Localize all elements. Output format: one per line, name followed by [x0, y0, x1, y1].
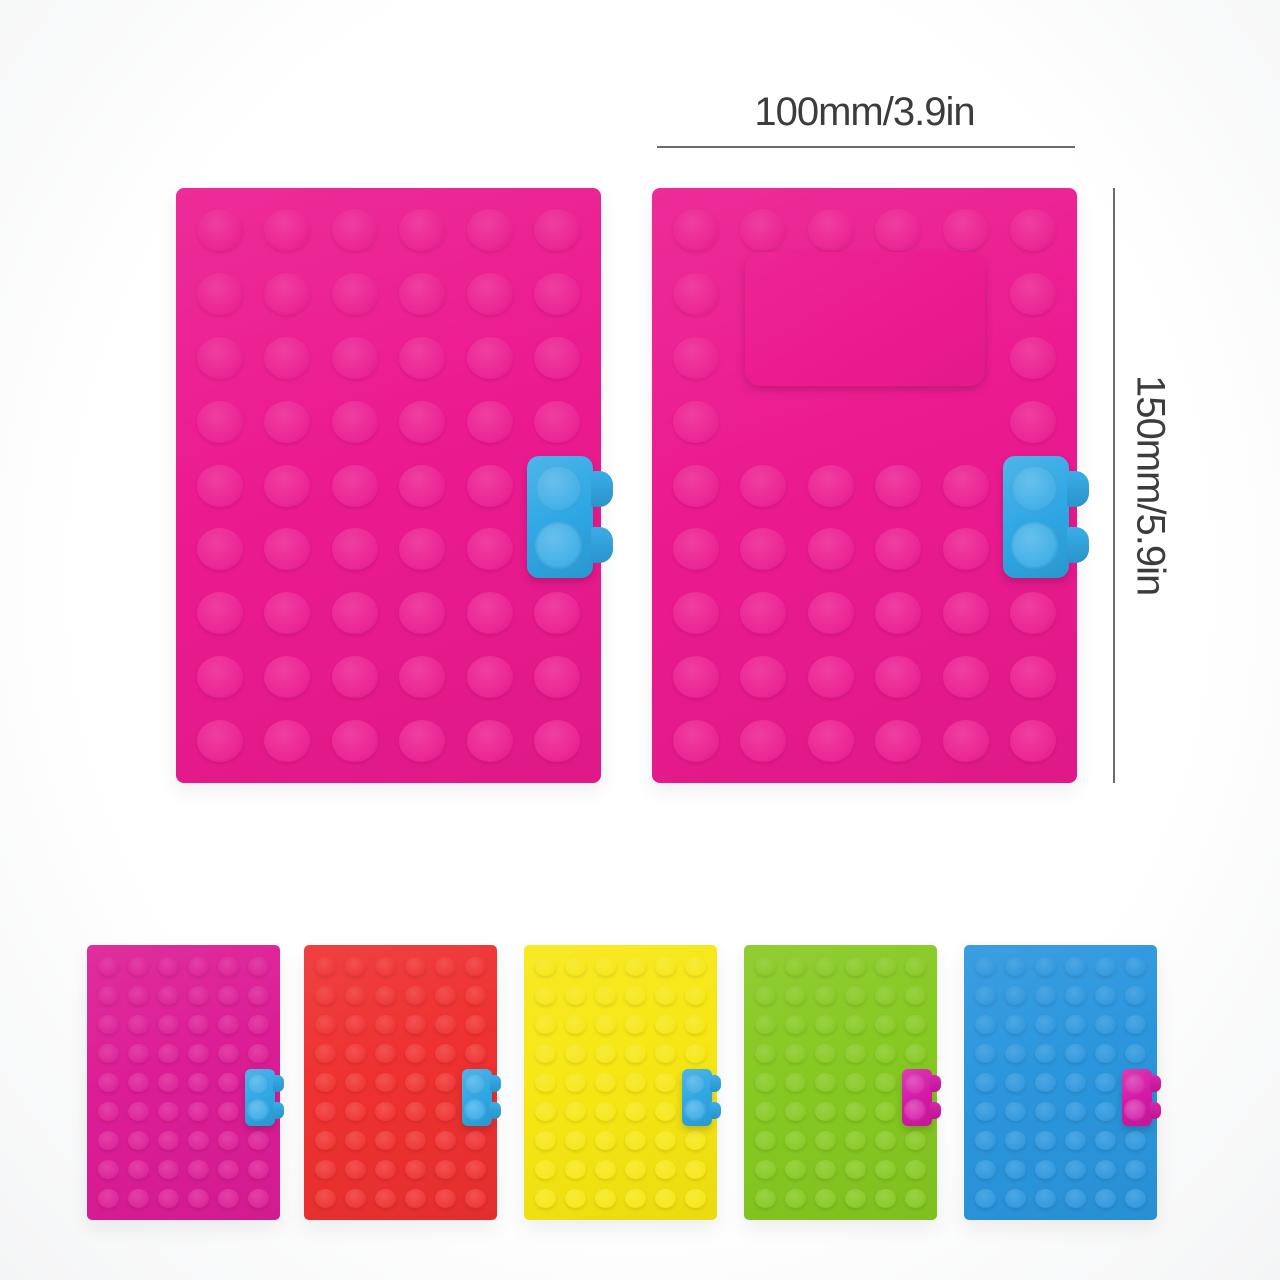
- stud: [405, 1131, 426, 1150]
- stud: [673, 592, 719, 634]
- stud: [467, 528, 513, 570]
- stud: [98, 1044, 119, 1063]
- stud: [673, 720, 719, 762]
- stud: [218, 1131, 239, 1150]
- stud: [673, 528, 719, 570]
- stud: [399, 209, 445, 251]
- stud: [875, 720, 921, 762]
- stud: [595, 1189, 616, 1208]
- stud: [128, 986, 149, 1005]
- stud: [673, 273, 719, 315]
- stud: [534, 273, 580, 315]
- stud: [1125, 1189, 1146, 1208]
- stud: [565, 1073, 586, 1092]
- clasp-stud: [904, 1099, 926, 1121]
- stud: [435, 1044, 456, 1063]
- stud: [465, 1189, 486, 1208]
- stud: [565, 1044, 586, 1063]
- stud: [875, 528, 921, 570]
- stud: [405, 1015, 426, 1034]
- stud: [332, 592, 378, 634]
- stud: [595, 1160, 616, 1179]
- stud: [565, 1102, 586, 1121]
- stud: [875, 1044, 896, 1063]
- stud: [1005, 957, 1026, 976]
- stud: [595, 986, 616, 1005]
- stud: [345, 1073, 366, 1092]
- stud: [975, 1044, 996, 1063]
- stud: [435, 1102, 456, 1121]
- stud: [1035, 957, 1056, 976]
- clasp-peg: [490, 1102, 501, 1119]
- stud: [845, 1160, 866, 1179]
- clasp-peg: [930, 1102, 941, 1119]
- stud: [943, 209, 989, 251]
- stud: [375, 1073, 396, 1092]
- clasp-stud: [464, 1073, 486, 1095]
- stud: [785, 1102, 806, 1121]
- stud: [375, 1189, 396, 1208]
- stud: [875, 1189, 896, 1208]
- stud: [128, 1015, 149, 1034]
- stud: [1005, 1044, 1026, 1063]
- stud: [655, 1015, 676, 1034]
- stud: [845, 957, 866, 976]
- stud: [740, 656, 786, 698]
- stud: [218, 1015, 239, 1034]
- stud: [975, 986, 996, 1005]
- stud: [625, 1131, 646, 1150]
- stud: [875, 957, 896, 976]
- stud: [815, 957, 836, 976]
- stud: [535, 1015, 556, 1034]
- stud: [345, 1160, 366, 1179]
- stud: [98, 957, 119, 976]
- stud: [535, 1044, 556, 1063]
- stud: [534, 656, 580, 698]
- stud: [158, 986, 179, 1005]
- stud: [465, 957, 486, 976]
- stud: [625, 986, 646, 1005]
- stud: [465, 1131, 486, 1150]
- stud: [405, 1073, 426, 1092]
- stud: [375, 1102, 396, 1121]
- clasp-peg: [1067, 471, 1089, 507]
- stud: [905, 986, 926, 1005]
- stud: [785, 986, 806, 1005]
- stud: [534, 209, 580, 251]
- stud: [345, 957, 366, 976]
- stud: [248, 986, 269, 1005]
- stud: [1035, 1189, 1056, 1208]
- stud: [975, 1073, 996, 1092]
- stud: [943, 465, 989, 507]
- stud: [625, 1189, 646, 1208]
- product-photo: 100mm/3.9in 150mm/5.9in: [0, 0, 1280, 1280]
- stud: [435, 1073, 456, 1092]
- stud: [655, 1073, 676, 1092]
- stud: [405, 986, 426, 1005]
- stud: [673, 465, 719, 507]
- stud: [375, 1131, 396, 1150]
- stud: [595, 957, 616, 976]
- cover-frame-panel: [745, 252, 985, 386]
- stud: [218, 1160, 239, 1179]
- stud: [465, 1044, 486, 1063]
- stud: [534, 720, 580, 762]
- stud: [248, 1189, 269, 1208]
- stud: [375, 1015, 396, 1034]
- stud: [158, 957, 179, 976]
- stud: [655, 1044, 676, 1063]
- stud: [685, 1015, 706, 1034]
- stud: [595, 1073, 616, 1092]
- stud: [685, 957, 706, 976]
- clasp-brick: [682, 1069, 712, 1126]
- clasp-stud: [247, 1099, 269, 1121]
- stud: [845, 1073, 866, 1092]
- stud: [399, 273, 445, 315]
- stud: [332, 337, 378, 379]
- stud: [188, 1131, 209, 1150]
- stud: [467, 656, 513, 698]
- stud: [1125, 1131, 1146, 1150]
- stud: [740, 528, 786, 570]
- stud: [158, 1189, 179, 1208]
- clasp-brick: [245, 1069, 275, 1126]
- stud: [375, 957, 396, 976]
- clasp-stud: [247, 1073, 269, 1095]
- stud: [315, 1073, 336, 1092]
- stud: [1065, 957, 1086, 976]
- stud: [332, 528, 378, 570]
- stud: [808, 209, 854, 251]
- red-variant-plate: [304, 945, 497, 1220]
- stud: [1010, 592, 1056, 634]
- stud: [535, 986, 556, 1005]
- stud: [435, 957, 456, 976]
- stud: [565, 1015, 586, 1034]
- stud: [673, 656, 719, 698]
- stud: [975, 1015, 996, 1034]
- stud: [815, 1189, 836, 1208]
- stud: [375, 1160, 396, 1179]
- stud: [218, 986, 239, 1005]
- stud: [345, 1102, 366, 1121]
- stud: [1095, 1102, 1116, 1121]
- stud: [264, 656, 310, 698]
- stud: [248, 957, 269, 976]
- stud: [188, 1015, 209, 1034]
- stud: [1005, 1073, 1026, 1092]
- stud: [264, 401, 310, 443]
- stud: [625, 1102, 646, 1121]
- clasp-stud: [1124, 1099, 1146, 1121]
- stud: [435, 986, 456, 1005]
- stud: [315, 1044, 336, 1063]
- stud: [845, 1044, 866, 1063]
- stud: [685, 1131, 706, 1150]
- stud: [197, 273, 243, 315]
- stud: [1010, 656, 1056, 698]
- stud: [98, 1160, 119, 1179]
- stud: [188, 1102, 209, 1121]
- stud: [158, 1102, 179, 1121]
- stud: [467, 273, 513, 315]
- stud: [595, 1044, 616, 1063]
- stud: [905, 1015, 926, 1034]
- stud: [655, 1189, 676, 1208]
- stud: [188, 957, 209, 976]
- stud: [345, 1044, 366, 1063]
- stud: [655, 957, 676, 976]
- stud: [785, 1015, 806, 1034]
- stud: [158, 1160, 179, 1179]
- clasp-stud: [1124, 1073, 1146, 1095]
- front-cover-plate: [652, 188, 1077, 783]
- stud: [845, 1015, 866, 1034]
- stud: [740, 465, 786, 507]
- clasp-stud: [464, 1099, 486, 1121]
- stud: [1010, 720, 1056, 762]
- stud: [98, 1102, 119, 1121]
- stud: [264, 720, 310, 762]
- stud: [1035, 986, 1056, 1005]
- stud: [188, 1160, 209, 1179]
- stud: [808, 592, 854, 634]
- stud: [345, 1189, 366, 1208]
- stud: [673, 209, 719, 251]
- stud: [655, 1102, 676, 1121]
- stud: [218, 1044, 239, 1063]
- stud: [785, 1073, 806, 1092]
- stud: [755, 1131, 776, 1150]
- stud: [467, 209, 513, 251]
- stud: [1065, 1015, 1086, 1034]
- stud: [943, 592, 989, 634]
- clasp-peg: [930, 1075, 941, 1092]
- stud: [1010, 209, 1056, 251]
- clasp-peg: [710, 1102, 721, 1119]
- stud: [1065, 1131, 1086, 1150]
- stud: [1095, 986, 1116, 1005]
- stud: [399, 592, 445, 634]
- stud: [332, 465, 378, 507]
- stud: [875, 1160, 896, 1179]
- stud: [1005, 1131, 1026, 1150]
- stud: [98, 1073, 119, 1092]
- stud: [875, 656, 921, 698]
- stud: [128, 1102, 149, 1121]
- stud: [315, 1102, 336, 1121]
- stud: [1035, 1102, 1056, 1121]
- stud: [740, 720, 786, 762]
- stud: [399, 720, 445, 762]
- clasp-peg: [1150, 1075, 1161, 1092]
- stud: [685, 1044, 706, 1063]
- stud: [905, 957, 926, 976]
- clasp-peg: [273, 1075, 284, 1092]
- clasp-peg: [591, 527, 613, 563]
- stud: [188, 1073, 209, 1092]
- stud: [785, 1160, 806, 1179]
- stud: [1125, 1015, 1146, 1034]
- stud: [264, 528, 310, 570]
- stud: [435, 1131, 456, 1150]
- clasp-peg: [591, 471, 613, 507]
- stud: [1125, 1160, 1146, 1179]
- stud: [197, 592, 243, 634]
- clasp-peg: [490, 1075, 501, 1092]
- clasp-peg: [1067, 527, 1089, 563]
- stud: [815, 1015, 836, 1034]
- stud: [315, 957, 336, 976]
- stud: [1095, 1044, 1116, 1063]
- stud: [128, 957, 149, 976]
- clasp-stud: [684, 1099, 706, 1121]
- plates-layer: [0, 0, 1280, 1280]
- stud: [264, 465, 310, 507]
- stud: [197, 337, 243, 379]
- stud: [158, 1015, 179, 1034]
- clasp-peg: [710, 1075, 721, 1092]
- stud: [264, 273, 310, 315]
- stud: [755, 1044, 776, 1063]
- stud: [875, 1073, 896, 1092]
- stud: [1005, 1160, 1026, 1179]
- clasp-peg: [273, 1102, 284, 1119]
- stud: [332, 209, 378, 251]
- yellow-variant-plate: [524, 945, 717, 1220]
- stud: [332, 656, 378, 698]
- stud: [905, 1189, 926, 1208]
- stud: [535, 1102, 556, 1121]
- stud: [975, 1102, 996, 1121]
- stud: [905, 1160, 926, 1179]
- stud: [565, 986, 586, 1005]
- stud: [685, 1189, 706, 1208]
- stud: [905, 1044, 926, 1063]
- pink-variant-plate: [87, 945, 280, 1220]
- stud: [197, 465, 243, 507]
- stud: [534, 337, 580, 379]
- stud: [264, 592, 310, 634]
- stud: [943, 720, 989, 762]
- stud: [248, 1160, 269, 1179]
- stud: [345, 986, 366, 1005]
- stud: [158, 1044, 179, 1063]
- stud: [435, 1189, 456, 1208]
- stud: [467, 720, 513, 762]
- stud: [345, 1131, 366, 1150]
- stud: [943, 656, 989, 698]
- stud: [785, 1189, 806, 1208]
- stud: [755, 1189, 776, 1208]
- stud: [943, 528, 989, 570]
- clasp-brick: [1122, 1069, 1152, 1126]
- stud: [435, 1015, 456, 1034]
- stud: [399, 465, 445, 507]
- stud: [1005, 986, 1026, 1005]
- stud: [685, 1160, 706, 1179]
- stud: [197, 209, 243, 251]
- stud: [740, 592, 786, 634]
- stud: [1065, 1102, 1086, 1121]
- stud: [875, 209, 921, 251]
- stud: [332, 720, 378, 762]
- stud: [975, 957, 996, 976]
- stud: [1005, 1189, 1026, 1208]
- stud: [1035, 1131, 1056, 1150]
- stud: [535, 1131, 556, 1150]
- stud: [405, 1102, 426, 1121]
- stud: [595, 1102, 616, 1121]
- stud: [467, 337, 513, 379]
- stud: [1010, 401, 1056, 443]
- stud: [875, 1015, 896, 1034]
- stud: [399, 656, 445, 698]
- stud: [565, 1189, 586, 1208]
- stud: [248, 1015, 269, 1034]
- stud: [755, 1073, 776, 1092]
- stud: [1095, 1189, 1116, 1208]
- stud: [399, 401, 445, 443]
- stud: [755, 957, 776, 976]
- stud: [1125, 986, 1146, 1005]
- stud: [1005, 1015, 1026, 1034]
- clasp-brick: [902, 1069, 932, 1126]
- stud: [975, 1189, 996, 1208]
- clasp-stud: [904, 1073, 926, 1095]
- stud: [535, 1189, 556, 1208]
- stud: [248, 1131, 269, 1150]
- stud: [197, 720, 243, 762]
- stud: [315, 1160, 336, 1179]
- stud: [655, 1160, 676, 1179]
- clasp-stud: [684, 1073, 706, 1095]
- stud: [467, 465, 513, 507]
- stud: [1065, 986, 1086, 1005]
- stud: [1095, 1015, 1116, 1034]
- stud: [405, 1189, 426, 1208]
- stud: [875, 592, 921, 634]
- stud: [755, 986, 776, 1005]
- green-variant-plate: [744, 945, 937, 1220]
- clasp-peg: [1150, 1102, 1161, 1119]
- stud: [1005, 1102, 1026, 1121]
- stud: [673, 401, 719, 443]
- blue-variant-plate: [964, 945, 1157, 1220]
- stud: [315, 1015, 336, 1034]
- stud: [1095, 1073, 1116, 1092]
- stud: [755, 1102, 776, 1121]
- stud: [673, 337, 719, 379]
- stud: [875, 1102, 896, 1121]
- stud: [845, 1131, 866, 1150]
- clasp-stud: [535, 465, 582, 512]
- stud: [465, 1015, 486, 1034]
- clasp-stud: [535, 522, 582, 569]
- stud: [785, 1131, 806, 1150]
- stud: [1125, 1044, 1146, 1063]
- stud: [218, 957, 239, 976]
- stud: [625, 1015, 646, 1034]
- stud: [465, 986, 486, 1005]
- stud: [1035, 1015, 1056, 1034]
- stud: [375, 986, 396, 1005]
- stud: [1010, 337, 1056, 379]
- clasp-brick: [1003, 456, 1069, 578]
